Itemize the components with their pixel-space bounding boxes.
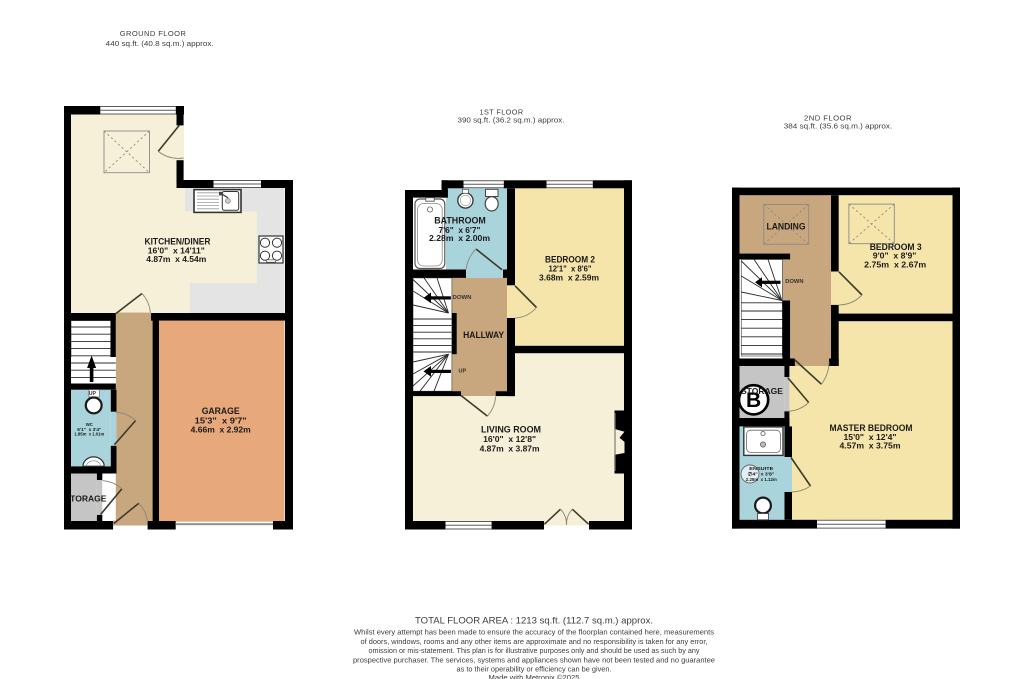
svg-text:1.85m x 1.01m: 1.85m x 1.01m — [74, 431, 104, 436]
svg-text:UP: UP — [89, 391, 97, 397]
svg-text:9'0" x 8'9": 9'0" x 8'9" — [873, 252, 917, 261]
svg-text:440 sq.ft. (40.8 sq.m.) approx: 440 sq.ft. (40.8 sq.m.) approx. — [106, 39, 214, 48]
svg-text:4.57m x 3.75m: 4.57m x 3.75m — [840, 441, 901, 450]
svg-text:4.87m x 4.54m: 4.87m x 4.54m — [146, 255, 206, 264]
svg-text:omission or mis-statement. Thi: omission or mis-statement. This plan is … — [369, 646, 700, 655]
svg-text:4.87m x 3.87m: 4.87m x 3.87m — [480, 444, 540, 453]
svg-text:4.66m x 2.92m: 4.66m x 2.92m — [191, 426, 251, 435]
svg-text:LIVING ROOM: LIVING ROOM — [481, 425, 541, 436]
svg-text:DOWN: DOWN — [785, 279, 803, 285]
svg-text:16'0" x 12'8": 16'0" x 12'8" — [483, 435, 536, 444]
svg-text:Whilst every attempt has been: Whilst every attempt has been made to en… — [354, 628, 714, 637]
svg-text:ENSUITE: ENSUITE — [749, 466, 773, 471]
svg-text:384 sq.ft. (35.6 sq.m.) approx: 384 sq.ft. (35.6 sq.m.) approx. — [784, 122, 893, 131]
svg-text:of doors, windows, rooms and a: of doors, windows, rooms and any other i… — [361, 637, 708, 646]
svg-text:390 sq.ft. (36.2 sq.m.) approx: 390 sq.ft. (36.2 sq.m.) approx. — [458, 115, 565, 124]
svg-text:TOTAL FLOOR AREA : 1213 sq.ft.: TOTAL FLOOR AREA : 1213 sq.ft. (112.7 sq… — [415, 615, 653, 626]
svg-text:prospective purchaser. The ser: prospective purchaser. The services, sys… — [353, 655, 715, 664]
svg-text:Made with Metropix ©2025: Made with Metropix ©2025 — [489, 673, 580, 679]
svg-text:2.25m x 1.12m: 2.25m x 1.12m — [746, 477, 777, 482]
svg-text:UP: UP — [459, 368, 467, 374]
svg-text:STORAGE: STORAGE — [741, 387, 784, 396]
svg-text:BATHROOM: BATHROOM — [434, 216, 486, 227]
svg-text:GROUND FLOOR: GROUND FLOOR — [120, 29, 187, 38]
svg-text:7'4" x 3'8": 7'4" x 3'8" — [748, 472, 774, 477]
svg-text:2.28m x 2.00m: 2.28m x 2.00m — [429, 234, 490, 243]
svg-text:DOWN: DOWN — [453, 295, 472, 301]
svg-text:HALLWAY: HALLWAY — [463, 330, 504, 340]
svg-text:12'1" x 8'6": 12'1" x 8'6" — [549, 265, 592, 274]
svg-text:15'3" x 9'7": 15'3" x 9'7" — [195, 416, 247, 425]
svg-text:3.68m x 2.59m: 3.68m x 2.59m — [539, 274, 599, 283]
svg-text:2.75m x 2.67m: 2.75m x 2.67m — [864, 260, 926, 269]
svg-text:LANDING: LANDING — [767, 221, 806, 231]
